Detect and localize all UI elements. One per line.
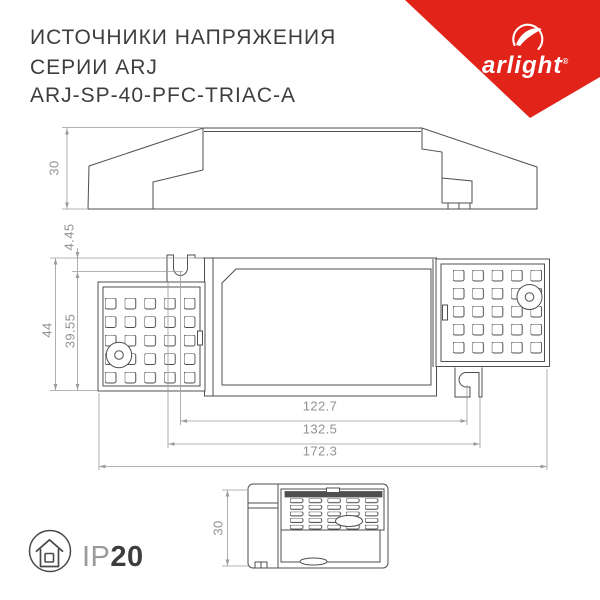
dim-width-inner: 122.7	[303, 399, 338, 414]
dim-width-total: 172.3	[303, 444, 338, 459]
dim-end-height: 30	[211, 520, 226, 535]
page-title-line2: СЕРИИ ARJ	[30, 56, 158, 80]
dim-top-offset: 4.45	[62, 224, 77, 251]
cable-entry-oval	[336, 516, 363, 527]
latch-left	[198, 331, 203, 345]
ip-rating: IP20	[82, 541, 144, 574]
dim-side-height: 30	[47, 160, 62, 175]
page-title-line3: ARJ-SP-40-PFC-TRIAC-A	[30, 84, 296, 108]
ip-rating-prefix: IP	[82, 541, 110, 573]
label-area	[222, 269, 431, 385]
ip20-house-icon	[30, 531, 71, 572]
left-vent-panel	[98, 282, 205, 391]
vent-slots	[290, 499, 379, 530]
right-vent-panel	[436, 259, 550, 367]
mounting-tab-top	[167, 255, 195, 282]
dim-top-inner-height: 39.55	[63, 314, 78, 349]
mounting-tab-bottom	[455, 368, 482, 398]
latch-right	[443, 305, 448, 320]
page-title-line1: ИСТОЧНИКИ НАПРЯЖЕНИЯ	[30, 26, 336, 50]
cable-knockout-right	[517, 285, 542, 310]
cable-knockout-left	[106, 342, 131, 367]
ip-rating-value: 20	[110, 541, 143, 573]
registered-mark: ®	[562, 57, 569, 66]
datasheet-page: ИСТОЧНИКИ НАПРЯЖЕНИЯ СЕРИИ ARJ ARJ-SP-40…	[0, 0, 600, 600]
top-view-drawing	[50, 248, 550, 470]
end-view-drawing	[222, 484, 388, 568]
dim-width-mid: 132.5	[303, 422, 338, 437]
side-view-drawing	[62, 128, 537, 210]
arlight-wordmark: arlight®	[482, 52, 569, 80]
dim-top-height: 44	[40, 322, 55, 337]
